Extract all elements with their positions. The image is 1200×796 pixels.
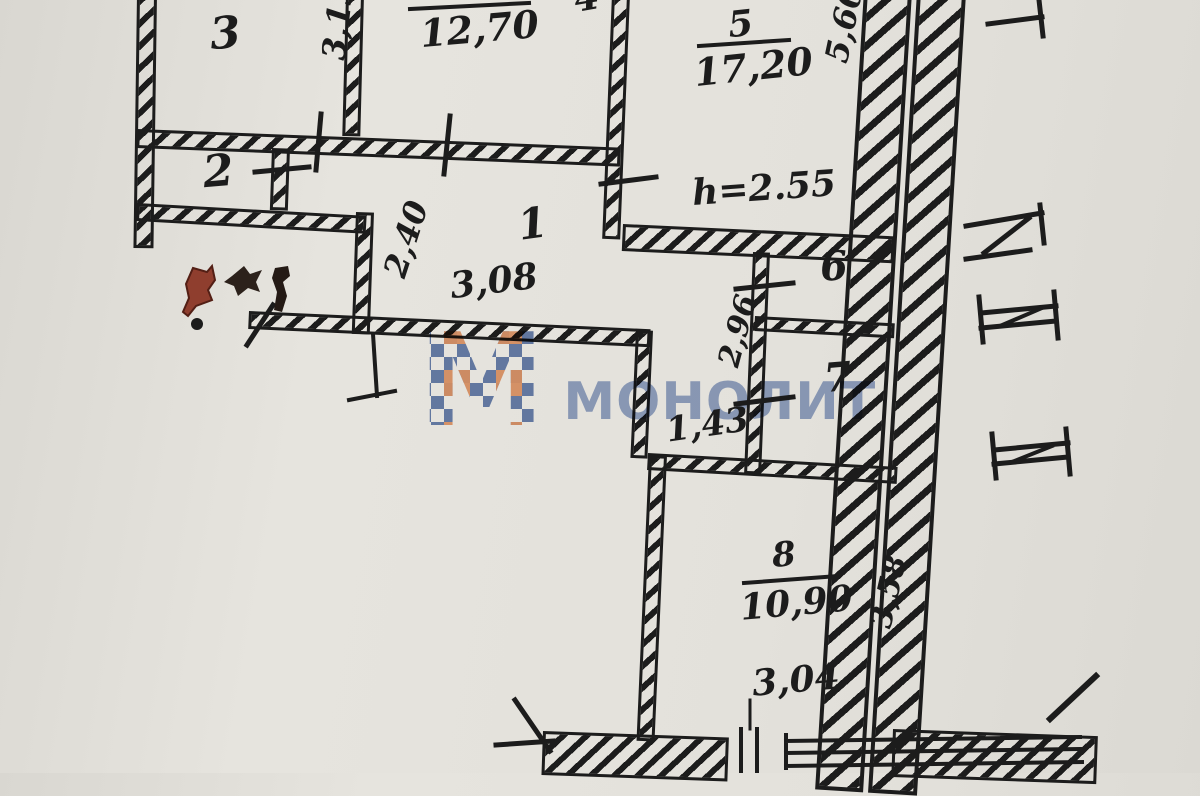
room3-number: 3 (208, 11, 242, 58)
column-stub-3 (992, 429, 1070, 478)
room7-number: 7 (822, 357, 853, 399)
dim-3-04: 3,04 (751, 658, 841, 702)
column-stub-1 (966, 205, 1044, 259)
column-stub-2 (979, 292, 1058, 342)
monolit-logo-icon: М (418, 318, 545, 446)
room5-area: 17,20 (692, 42, 814, 92)
room2-number: 2 (201, 149, 235, 196)
room4-area: 12,70 (419, 5, 541, 53)
wall-bottom-exterior-left (541, 731, 728, 781)
floor-plan: 3 2 1 4 12,70 5 17,20 6 7 8 10,90 3,13 5… (0, 0, 1200, 773)
ink-dot-mark (191, 318, 203, 330)
dim-3-08: 3,08 (448, 258, 539, 304)
dark-blob-mark (272, 266, 290, 312)
column-tick-bottom (1050, 676, 1096, 719)
dim-3-13: 3,13 (317, 0, 358, 62)
wall-room2-bottom (136, 203, 367, 234)
wall-room2-right (270, 148, 290, 211)
column-stub-2-diag (1000, 308, 1042, 326)
room4-number-partial: 4 (571, 0, 602, 18)
watermark: М МОНОЛИТ (418, 318, 876, 446)
wall-bottom-exterior-right (891, 729, 1098, 784)
dark-star-mark (224, 266, 262, 296)
dim-h-255: h=2.55 (691, 165, 837, 211)
dim-240-extension (349, 334, 395, 400)
floor-plan-photo: { "watermark": { "logo_letter": "М", "br… (0, 0, 1200, 773)
column-stub-top (988, 0, 1043, 36)
room5-number: 5 (726, 5, 755, 43)
wall-room5-left (602, 0, 630, 240)
column-stub-3-diag (1012, 446, 1052, 462)
dim-2-40: 2,40 (379, 197, 434, 281)
wall-room8-left-lower (637, 455, 667, 742)
dim-1-43: 1,43 (664, 402, 751, 447)
room1-number: 1 (515, 201, 550, 247)
red-stamp-mark (183, 266, 215, 316)
room8-area: 10,90 (739, 580, 854, 626)
room6-number: 6 (818, 246, 849, 288)
room8-number: 8 (771, 537, 798, 573)
